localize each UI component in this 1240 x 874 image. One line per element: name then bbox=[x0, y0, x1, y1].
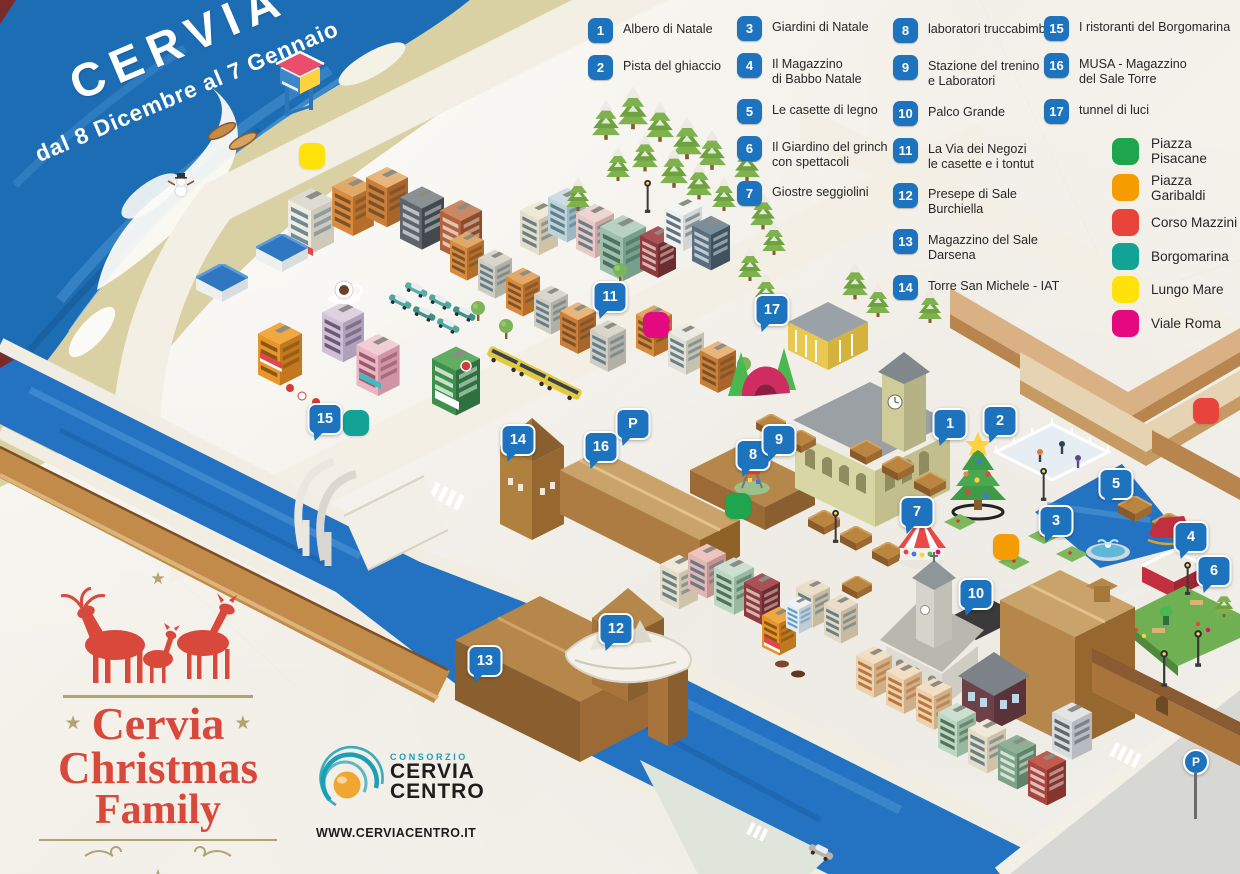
legend-item-number: 3 bbox=[737, 16, 762, 41]
legend-item: 12 Presepe di Sale Burchiella bbox=[893, 183, 1078, 217]
star-icon: ★ bbox=[234, 712, 251, 735]
consorzio-name-1: CERVIA bbox=[390, 762, 485, 782]
map-marker[interactable]: 11 bbox=[593, 281, 628, 313]
star-icon: ★ bbox=[22, 570, 294, 587]
reindeer-family-icon bbox=[52, 587, 264, 687]
area-color-swatch bbox=[1112, 209, 1139, 236]
legend-item: 13 Magazzino del Sale Darsena bbox=[893, 229, 1078, 263]
map-marker[interactable]: 14 bbox=[501, 424, 536, 456]
legend-item-number: 15 bbox=[1044, 16, 1069, 41]
map-marker[interactable]: 4 bbox=[1174, 521, 1209, 553]
legend-item: 3 Giardini di Natale bbox=[737, 16, 897, 41]
legend-item-label: Albero di Natale bbox=[623, 18, 713, 37]
area-color-swatch bbox=[1112, 174, 1139, 201]
area-legend-item: Piazza Pisacane bbox=[1112, 136, 1240, 166]
legend-item-number: 8 bbox=[893, 18, 918, 43]
legend-item: 2 Pista del ghiaccio bbox=[588, 55, 738, 80]
map-marker-number: P bbox=[1192, 755, 1200, 769]
legend-item-label: Torre San Michele - IAT bbox=[928, 275, 1059, 294]
area-legend-label: Borgomarina bbox=[1151, 249, 1229, 264]
map-marker[interactable]: 6 bbox=[1197, 555, 1232, 587]
brand-title-1: Cervia bbox=[92, 701, 225, 746]
legend-item-number: 2 bbox=[588, 55, 613, 80]
map-marker[interactable]: 9 bbox=[762, 424, 797, 456]
legend-item-label: Palco Grande bbox=[928, 101, 1005, 120]
legend-column-1: 1 Albero di Natale 2 Pista del ghiaccio bbox=[588, 18, 738, 92]
map-marker-number: 16 bbox=[593, 439, 609, 455]
brand-title-2: Christmas bbox=[22, 746, 294, 790]
legend-item-number: 5 bbox=[737, 99, 762, 124]
map-marker[interactable]: 12 bbox=[599, 613, 634, 645]
legend-item-number: 9 bbox=[893, 55, 918, 80]
legend-item: 4 Il Magazzino di Babbo Natale bbox=[737, 53, 897, 87]
legend-item-number: 4 bbox=[737, 53, 762, 78]
poster: CERVIA dal 8 Dicembre al 7 Gennaio 1 Alb… bbox=[0, 0, 1240, 874]
area-legend-label: Viale Roma bbox=[1151, 316, 1221, 331]
consorzio-logo-icon bbox=[316, 744, 386, 816]
legend-item-label: Giardini di Natale bbox=[772, 16, 869, 35]
legend-item-label: La Via dei Negozi le casette e i tontut bbox=[928, 138, 1034, 172]
legend-column-2: 3 Giardini di Natale 4 Il Magazzino di B… bbox=[737, 16, 897, 218]
map-marker[interactable]: 1 bbox=[933, 408, 968, 440]
area-legend-label: Lungo Mare bbox=[1151, 282, 1224, 297]
area-color-swatch bbox=[1112, 243, 1139, 270]
legend-item-label: Giostre seggiolini bbox=[772, 181, 869, 200]
area-color-swatch bbox=[1112, 276, 1139, 303]
area-legend-item: Viale Roma bbox=[1112, 310, 1240, 337]
area-legend-item: Lungo Mare bbox=[1112, 276, 1240, 303]
area-color-swatch bbox=[1112, 138, 1139, 165]
legend-item: 15 I ristoranti del Borgomarina bbox=[1044, 16, 1234, 41]
legend-item: 6 Il Giardino del grinch con spettacoli bbox=[737, 136, 897, 170]
map-marker-number: 11 bbox=[602, 289, 617, 305]
map-marker[interactable]: 17 bbox=[755, 294, 790, 326]
christmas-tree bbox=[950, 432, 1006, 519]
area-color-swatch bbox=[1112, 310, 1139, 337]
area-legend-label: Piazza Pisacane bbox=[1151, 136, 1240, 166]
legend-item-label: Pista del ghiaccio bbox=[623, 55, 721, 74]
area-legend-label: Piazza Garibaldi bbox=[1151, 173, 1240, 203]
map-marker[interactable]: 15 bbox=[308, 403, 343, 435]
legend-item-label: Le casette di legno bbox=[772, 99, 878, 118]
map-marker-number: 9 bbox=[775, 432, 783, 448]
area-legend-item: Piazza Garibaldi bbox=[1112, 173, 1240, 203]
area-legend-label: Corso Mazzini bbox=[1151, 215, 1237, 230]
area-legend-item: Corso Mazzini bbox=[1112, 209, 1240, 236]
legend-item: 1 Albero di Natale bbox=[588, 18, 738, 43]
street-lamp bbox=[644, 180, 651, 213]
legend-item-label: tunnel di luci bbox=[1079, 99, 1149, 118]
map-marker-number: 3 bbox=[1052, 513, 1060, 529]
yellow-building bbox=[788, 302, 868, 370]
legend-item: 5 Le casette di legno bbox=[737, 99, 897, 124]
consorzio-block: CONSORZIO CERVIA CENTRO WWW.CERVIACENTRO… bbox=[316, 744, 506, 840]
legend-item-number: 14 bbox=[893, 275, 918, 300]
map-marker-number: 15 bbox=[317, 411, 333, 427]
map-marker[interactable]: 13 bbox=[468, 645, 503, 677]
map-marker-number: 17 bbox=[764, 302, 780, 318]
legend-item: 14 Torre San Michele - IAT bbox=[893, 275, 1078, 300]
map-marker-number: 4 bbox=[1187, 529, 1195, 545]
legend-item-label: Presepe di Sale Burchiella bbox=[928, 183, 1017, 217]
map-marker-number: 8 bbox=[749, 447, 757, 463]
brand-logo: ★ bbox=[22, 570, 294, 874]
legend-item-number: 7 bbox=[737, 181, 762, 206]
parked-cars bbox=[387, 279, 477, 336]
legend-item-number: 11 bbox=[893, 138, 918, 163]
map-marker-number: 10 bbox=[968, 586, 984, 602]
legend-item: 7 Giostre seggiolini bbox=[737, 181, 897, 206]
map-marker-number: 2 bbox=[996, 413, 1004, 429]
legend-item-number: 12 bbox=[893, 183, 918, 208]
legend-item-label: laboratori truccabimbi bbox=[928, 18, 1048, 37]
legend-item-label: I ristoranti del Borgomarina bbox=[1079, 16, 1230, 35]
legend-item-number: 17 bbox=[1044, 99, 1069, 124]
map-marker[interactable]: 10 bbox=[959, 578, 994, 610]
map-marker-number: 13 bbox=[477, 653, 493, 669]
map-marker[interactable]: P bbox=[616, 408, 651, 440]
brand-title-3: Family bbox=[22, 790, 294, 831]
flourish-icon bbox=[83, 844, 233, 864]
map-marker[interactable]: 16 bbox=[584, 431, 619, 463]
legend-item-number: 13 bbox=[893, 229, 918, 254]
legend-item: 17 tunnel di luci bbox=[1044, 99, 1234, 124]
area-legend: Piazza Pisacane Piazza Garibaldi Corso M… bbox=[1112, 136, 1240, 343]
map-marker[interactable]: 2 bbox=[983, 405, 1018, 437]
map-marker-number: 1 bbox=[946, 416, 954, 432]
website-url[interactable]: WWW.CERVIACENTRO.IT bbox=[316, 826, 506, 840]
legend-item-number: 16 bbox=[1044, 53, 1069, 78]
legend-item-label: Il Giardino del grinch con spettacoli bbox=[772, 136, 888, 170]
map-marker[interactable]: 5 bbox=[1099, 468, 1134, 500]
map-marker-number: 7 bbox=[913, 504, 921, 520]
map-marker-number: 12 bbox=[608, 621, 624, 637]
legend-column-4: 15 I ristoranti del Borgomarina 16 MUSA … bbox=[1044, 16, 1234, 136]
legend-item: 11 La Via dei Negozi le casette e i tont… bbox=[893, 138, 1078, 172]
map-marker-number: 6 bbox=[1210, 563, 1218, 579]
map-marker-number: 14 bbox=[510, 432, 526, 448]
legend-item-label: Stazione del trenino e Laboratori bbox=[928, 55, 1039, 89]
legend-item-label: MUSA - Magazzino del Sale Torre bbox=[1079, 53, 1187, 87]
divider bbox=[39, 839, 277, 842]
map-marker[interactable]: 7 bbox=[900, 496, 935, 528]
area-legend-item: Borgomarina bbox=[1112, 243, 1240, 270]
light-tunnel bbox=[728, 348, 796, 396]
legend-item-number: 10 bbox=[893, 101, 918, 126]
consorzio-name-2: CENTRO bbox=[390, 782, 485, 802]
legend-item-number: 1 bbox=[588, 18, 613, 43]
legend-item-label: Magazzino del Sale Darsena bbox=[928, 229, 1078, 263]
legend-item-number: 6 bbox=[737, 136, 762, 161]
map-marker-number: 5 bbox=[1112, 476, 1120, 492]
map-marker-number: P bbox=[628, 416, 638, 432]
legend-item: 16 MUSA - Magazzino del Sale Torre bbox=[1044, 53, 1234, 87]
legend-item-label: Il Magazzino di Babbo Natale bbox=[772, 53, 862, 87]
map-marker[interactable]: 3 bbox=[1039, 505, 1074, 537]
map-marker[interactable]: P bbox=[1183, 749, 1209, 775]
star-icon: ★ bbox=[65, 712, 82, 735]
star-icon: ★ bbox=[22, 865, 294, 874]
